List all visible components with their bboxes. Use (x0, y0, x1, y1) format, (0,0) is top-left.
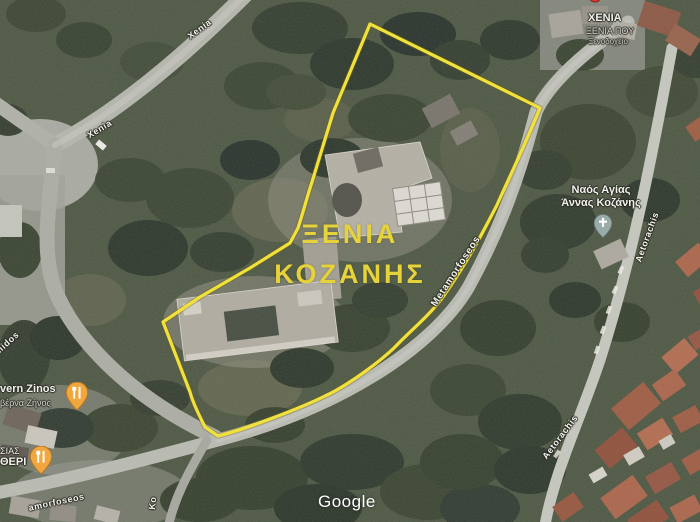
map-canvas[interactable]: ΞΕΝΙΑ ΚΟΖΑΝΗΣ Xenia Xenia Metamorfoseos … (0, 0, 700, 522)
red-pin-icon[interactable] (588, 0, 602, 4)
restaurant-pin-icon[interactable] (66, 382, 88, 410)
church-pin-icon[interactable] (594, 214, 612, 238)
restaurant-pin-icon[interactable] (30, 446, 52, 474)
satellite-imagery (0, 0, 700, 522)
